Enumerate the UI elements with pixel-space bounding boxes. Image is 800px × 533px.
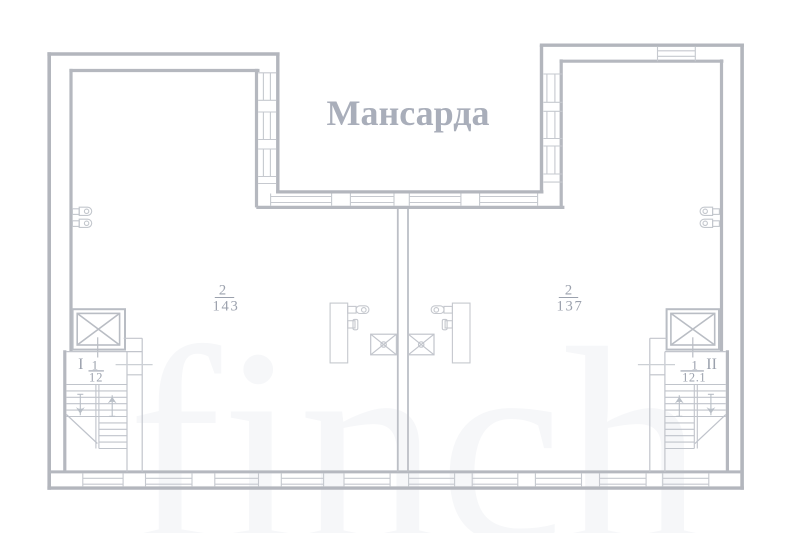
svg-text:Мансарда: Мансарда xyxy=(327,93,490,133)
svg-text:finch: finch xyxy=(128,290,703,533)
svg-text:2: 2 xyxy=(219,283,226,299)
svg-text:12: 12 xyxy=(89,371,103,385)
svg-text:II: II xyxy=(706,356,717,373)
svg-text:2: 2 xyxy=(565,283,572,299)
svg-text:137: 137 xyxy=(557,299,584,315)
svg-text:I: I xyxy=(78,356,83,373)
svg-text:12.1: 12.1 xyxy=(682,371,706,385)
svg-text:143: 143 xyxy=(213,299,240,315)
